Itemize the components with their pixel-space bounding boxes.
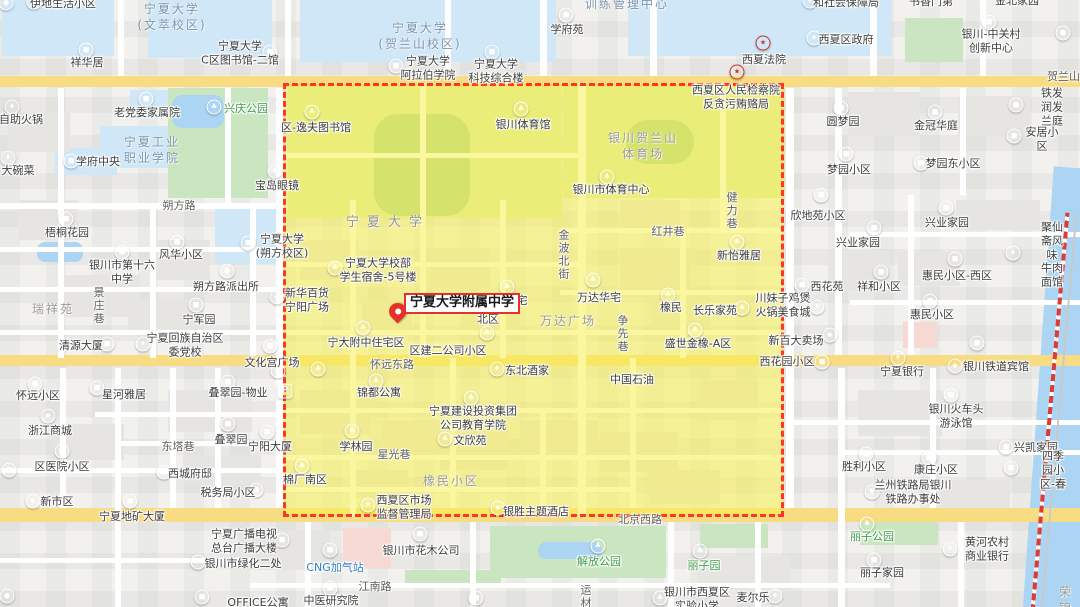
poi-label[interactable]: 宁夏广播电视 总台广播大楼	[211, 527, 277, 555]
o-poi-icon[interactable]: ♦	[768, 589, 783, 604]
poi-label[interactable]: 梦园小区	[827, 163, 871, 177]
area-label: 银川贺兰山 体育场	[608, 130, 678, 162]
minor-road	[0, 247, 283, 252]
bk-poi-icon[interactable]: ¥	[943, 542, 958, 557]
area-label: 瑞祥苑	[32, 301, 74, 317]
poi-label[interactable]: 文化宫广场	[245, 356, 300, 370]
b-poi-icon[interactable]: ■	[999, 440, 1014, 455]
road-label: 星光巷	[378, 446, 411, 462]
b-poi-icon[interactable]: ■	[55, 444, 70, 459]
road-label: 贺兰山路	[1047, 68, 1080, 84]
map-area-park	[905, 18, 963, 62]
poi-label[interactable]: OFFICE公寓	[227, 596, 288, 607]
poi-label[interactable]: 长乐家苑	[693, 304, 737, 318]
poi-label[interactable]: 锦都公寓	[357, 386, 401, 400]
poi-label[interactable]: 学府苑	[551, 23, 584, 37]
poi-label[interactable]: 银川-中关村 创新中心	[962, 27, 1021, 55]
poi-label[interactable]: 麦尔乐	[737, 591, 770, 605]
minor-road	[0, 330, 283, 335]
poi-label[interactable]: 宁夏建设投资集团 公司教育学院	[429, 404, 517, 432]
poi-label[interactable]: 宁夏大学 C区图书馆-二馆	[201, 39, 279, 67]
pk-poi-icon[interactable]: P	[278, 384, 293, 399]
poi-label[interactable]: 宁大附中住宅区	[328, 336, 405, 350]
b-poi-icon[interactable]: ■	[123, 494, 138, 509]
minor-road	[285, 0, 291, 76]
poi-label[interactable]: 西夏区政府	[819, 33, 874, 47]
minor-road	[95, 412, 283, 417]
gs-poi-icon[interactable]: ★	[361, 498, 376, 513]
b-poi-icon[interactable]: ■	[263, 339, 278, 354]
area-label: 宁夏大学	[346, 214, 430, 232]
o-poi-icon[interactable]: ♦	[490, 362, 505, 377]
poi-label[interactable]: 银川铁道宾馆	[963, 360, 1029, 374]
b-poi-icon[interactable]: ■	[221, 417, 236, 432]
r-poi-icon[interactable]: ●	[0, 589, 15, 604]
b-poi-icon[interactable]: ■	[834, 101, 849, 116]
poi-label[interactable]: 宁夏大学 (朔方校区)	[256, 232, 309, 260]
area-label: 宁夏大学 (贺兰山校区)	[378, 20, 461, 52]
area-label: 训练管理中心	[585, 0, 669, 12]
poi-label[interactable]: 聚仙斋风味 牛肉面馆	[1038, 221, 1066, 290]
poi-label[interactable]: 兴业家园	[925, 216, 969, 230]
poi-label[interactable]: 银川体育馆	[496, 118, 551, 132]
b-poi-icon[interactable]: ■	[195, 590, 210, 605]
road-label: 红井巷	[652, 223, 685, 239]
o-poi-icon[interactable]: ♦	[810, 300, 825, 315]
p-poi-icon[interactable]: ◆	[268, 164, 283, 179]
b-poi-icon[interactable]: ■	[928, 105, 943, 120]
area-label: 万达广场	[540, 313, 596, 329]
p-poi-icon[interactable]: ◆	[948, 359, 963, 374]
b-poi-icon[interactable]: ■	[59, 212, 74, 227]
g-poi-icon[interactable]: ♣	[356, 321, 371, 336]
minor-road	[60, 368, 66, 508]
minor-road	[250, 583, 890, 588]
poi-label[interactable]: 伊地生活小区	[30, 0, 96, 11]
g-poi-icon[interactable]: ♣	[480, 326, 495, 341]
b-poi-icon[interactable]: ■	[795, 278, 810, 293]
poi-label[interactable]: 书香门第	[909, 0, 953, 9]
poi-label[interactable]: 万达华宅	[577, 291, 621, 305]
b-poi-icon[interactable]: ■	[948, 252, 963, 267]
minor-road	[850, 300, 1080, 305]
poi-label[interactable]: 祥华居	[71, 56, 104, 70]
poi-label[interactable]: 银川市绿化二处	[205, 557, 282, 571]
b-poi-icon[interactable]: ■	[1004, 461, 1019, 476]
b-poi-icon[interactable]: ■	[923, 294, 938, 309]
poi-label[interactable]: 银川市第十六 中学	[89, 258, 155, 286]
poi-label[interactable]: 丽子公园	[850, 530, 894, 544]
poi-label[interactable]: 区-逸夫图书馆	[281, 121, 351, 135]
poi-label[interactable]: 西城府邸	[168, 467, 212, 481]
road-label: 健力巷	[723, 192, 739, 231]
o-poi-icon[interactable]: ♦	[1006, 246, 1021, 261]
g-poi-icon[interactable]: ♣	[591, 539, 606, 554]
p-poi-icon[interactable]: ◆	[823, 328, 838, 343]
poi-label[interactable]: 丽子家园	[860, 566, 904, 580]
road-label: 怀远东路	[370, 356, 414, 372]
poi-label[interactable]: 东北酒家	[505, 364, 549, 378]
b-poi-icon[interactable]: ■	[814, 188, 829, 203]
b-poi-icon[interactable]: ■	[241, 236, 256, 251]
poi-label[interactable]: 清源大厦	[59, 339, 103, 353]
bk-poi-icon[interactable]: ¥	[891, 351, 906, 366]
poi-label[interactable]: 银川市花木公司	[383, 544, 460, 558]
road-label: 运材	[577, 584, 593, 607]
b-poi-icon[interactable]: ■	[189, 298, 204, 313]
poi-label[interactable]: 宁夏大学 阿拉伯学院	[401, 54, 456, 82]
poi-label[interactable]: 星河雅居	[102, 388, 146, 402]
poi-label[interactable]: 浙江商城	[28, 424, 72, 438]
poi-label[interactable]: CNG加气站	[306, 561, 363, 575]
poi-label[interactable]: 区医院小区	[35, 460, 90, 474]
road-label: 东塔巷	[162, 438, 195, 454]
poi-label[interactable]: 自助火锅	[0, 113, 43, 127]
minor-road	[960, 88, 966, 195]
poi-label[interactable]: 金北家园	[995, 0, 1039, 8]
minor-road	[0, 203, 283, 209]
road-label: 北京西路	[618, 511, 662, 527]
b-poi-icon[interactable]: ■	[260, 425, 275, 440]
poi-label[interactable]: 西花苑	[811, 280, 844, 294]
minor-road	[838, 368, 845, 607]
b-poi-icon[interactable]: ■	[1056, 26, 1071, 41]
minor-road	[540, 0, 547, 76]
poi-label[interactable]: 胜利小区	[842, 460, 886, 474]
poi-label[interactable]: 宁夏地矿大厦	[99, 510, 165, 524]
minor-road	[958, 522, 964, 607]
map-area-gray	[848, 92, 920, 136]
poi-label[interactable]: 学府中央	[76, 155, 120, 169]
b-poi-icon[interactable]: ■	[944, 388, 959, 403]
poi-label[interactable]: 叠翠园	[215, 433, 248, 447]
selected-location-label[interactable]: 宁夏大学附属中学	[404, 293, 520, 314]
poi-label[interactable]: 西夏法院	[742, 53, 786, 67]
poi-label[interactable]: 梧桐花园	[45, 226, 89, 240]
b-poi-icon[interactable]: ■	[970, 336, 985, 351]
b-poi-icon[interactable]: ■	[939, 201, 954, 216]
road-label: 金波北街	[555, 229, 571, 281]
poi-label[interactable]: 宁夏回族自治区 委党校	[147, 331, 224, 359]
b-poi-icon[interactable]: ■	[323, 543, 338, 558]
poi-label[interactable]: 宁夏银行	[880, 365, 924, 379]
poi-label[interactable]: 安居小区	[1023, 125, 1061, 153]
area-label: 橡民小区	[423, 473, 479, 489]
poi-label[interactable]: 新百大卖场	[769, 334, 824, 348]
poi-label[interactable]: 银胜主题酒店	[503, 505, 569, 519]
g-poi-icon[interactable]: ♣	[305, 105, 320, 120]
poi-label[interactable]: 惠民小区	[910, 308, 954, 322]
minor-road	[908, 195, 914, 355]
poi-label[interactable]: 老党委家属院	[114, 106, 180, 120]
minor-road	[115, 368, 121, 607]
poi-label[interactable]: 梦园东小区	[926, 157, 981, 171]
b-poi-icon[interactable]: ■	[469, 591, 484, 606]
b-poi-icon[interactable]: ■	[1007, 129, 1022, 144]
b-poi-icon[interactable]: ■	[559, 8, 574, 23]
b-poi-icon[interactable]: ■	[115, 245, 130, 260]
road-label: 景庄巷	[90, 287, 106, 326]
b-poi-icon[interactable]: ■	[874, 265, 889, 280]
poi-label[interactable]: 银川市西夏区 实验小学	[664, 585, 730, 607]
poi-label[interactable]: 橡民	[660, 301, 682, 315]
road-label: 江南路	[359, 578, 392, 594]
map-canvas[interactable]: 朔方路景庄巷东塔巷怀远东路星光巷红井巷健力巷争先巷金波北街江南路北京西路贺兰山路…	[0, 0, 1080, 607]
area-label: 宁夏大学 (文萃校区)	[137, 1, 206, 33]
poi-label[interactable]: 银川火车头 游泳馆	[929, 402, 984, 430]
poi-label[interactable]: 宁夏大学校部 学生宿舍-5号楼	[340, 256, 417, 284]
poi-label[interactable]: 圆梦园	[827, 115, 860, 129]
poi-label[interactable]: 宁夏大学 科技综合楼	[469, 57, 524, 85]
road-label: 朔方路	[163, 197, 196, 213]
poi-label[interactable]: 银川市体育中心	[573, 183, 650, 197]
map-area-park	[405, 570, 501, 584]
g-poi-icon[interactable]: ♣	[345, 424, 360, 439]
b-poi-icon[interactable]: ■	[839, 147, 854, 162]
p-poi-icon[interactable]: ◆	[26, 494, 41, 509]
poi-label[interactable]: 康庄小区	[914, 463, 958, 477]
poi-label[interactable]: 新市区	[41, 495, 74, 509]
poi-label[interactable]: 兴业家园	[836, 236, 880, 250]
poi-label[interactable]: 新华百货 宁阳广场	[285, 286, 329, 314]
poi-label[interactable]: 兴庆公园	[224, 102, 268, 116]
poi-label[interactable]: 兰州铁路局银川 铁路办事处	[875, 478, 952, 506]
road-label: 争先巷	[614, 315, 630, 354]
poi-label[interactable]: 学林园	[340, 440, 373, 454]
b-poi-icon[interactable]: ■	[867, 221, 882, 236]
p-poi-icon[interactable]: ◆	[270, 290, 285, 305]
poi-label[interactable]: 文欣苑	[454, 434, 487, 448]
poi-label[interactable]: 祥和小区	[857, 280, 901, 294]
b-poi-icon[interactable]: ■	[2, 463, 17, 478]
poi-label[interactable]: 西夏区市场 监督管理局	[377, 493, 432, 521]
poi-label[interactable]: 欣地苑小区	[791, 209, 846, 223]
area-label: 宁夏工业 职业学院	[124, 134, 180, 166]
poi-label[interactable]: 铁发润发兰庭	[1038, 86, 1066, 127]
b-poi-icon[interactable]: ■	[413, 527, 428, 542]
g-poi-icon[interactable]: ♣	[464, 391, 479, 406]
bd-poi-icon[interactable]: ★	[756, 36, 771, 51]
b-poi-icon[interactable]: ■	[139, 92, 154, 107]
p-poi-icon[interactable]: ◆	[41, 409, 56, 424]
poi-label[interactable]: 新怡雅居	[717, 249, 761, 263]
poi-label[interactable]: 丽子园	[688, 559, 721, 573]
poi-label[interactable]: 四季园小区-春	[1040, 449, 1067, 490]
poi-label[interactable]: 和社会保障局	[813, 0, 879, 10]
poi-label[interactable]: 惠民小区-西区	[922, 269, 992, 283]
poi-label[interactable]: 怀远小区	[16, 389, 60, 403]
poi-label[interactable]: 朔方路派出所	[193, 280, 259, 294]
b-poi-icon[interactable]: ■	[815, 355, 830, 370]
area-label: 荣锦	[1059, 584, 1073, 607]
g-poi-icon[interactable]: ♣	[295, 459, 310, 474]
poi-label[interactable]: 大碗菜	[2, 164, 35, 178]
g-poi-icon[interactable]: ♣	[586, 273, 601, 288]
rs-poi-icon[interactable]: ★	[191, 555, 206, 570]
poi-label[interactable]: 川妹子鸡煲 火锅美食城	[756, 291, 811, 319]
r-poi-icon[interactable]: ●	[220, 264, 235, 279]
g-poi-icon[interactable]: ♣	[438, 432, 453, 447]
poi-label[interactable]: 中医研究院	[304, 594, 359, 607]
poi-label[interactable]: 税务局小区	[201, 486, 256, 500]
poi-label[interactable]: 黄河农村 商业银行	[965, 535, 1009, 563]
g-poi-icon[interactable]: ♣	[207, 100, 222, 115]
poi-label[interactable]: 盛世金橡-A区	[665, 337, 732, 351]
poi-label[interactable]: 西花园小区	[760, 355, 815, 369]
poi-label[interactable]: 金冠华庭	[914, 119, 958, 133]
g-poi-icon[interactable]: ♣	[730, 235, 745, 250]
poi-label[interactable]: 区建二公司小区	[410, 344, 487, 358]
poi-label[interactable]: 宝岛眼镜	[255, 179, 299, 193]
g-poi-icon[interactable]: ♣	[311, 362, 326, 377]
g-poi-icon[interactable]: ♣	[688, 323, 703, 338]
poi-label[interactable]: 西夏区人民检察院 反贪污贿赂局	[692, 83, 780, 111]
minor-road	[118, 0, 124, 76]
poi-label[interactable]: 宁军园	[183, 313, 216, 327]
poi-label[interactable]: 棉厂南区	[283, 473, 327, 487]
poi-label[interactable]: 叠翠园-物业	[209, 386, 268, 400]
poi-label[interactable]: 风华小区	[159, 248, 203, 262]
b-poi-icon[interactable]: ■	[1009, 98, 1024, 113]
poi-label[interactable]: 宁阳大厦	[248, 440, 292, 454]
g-poi-icon[interactable]: ♣	[693, 544, 708, 559]
poi-label[interactable]: 解放公园	[577, 555, 621, 569]
poi-label[interactable]: 中国石油	[610, 373, 654, 387]
g-poi-icon[interactable]: ♣	[514, 102, 529, 117]
